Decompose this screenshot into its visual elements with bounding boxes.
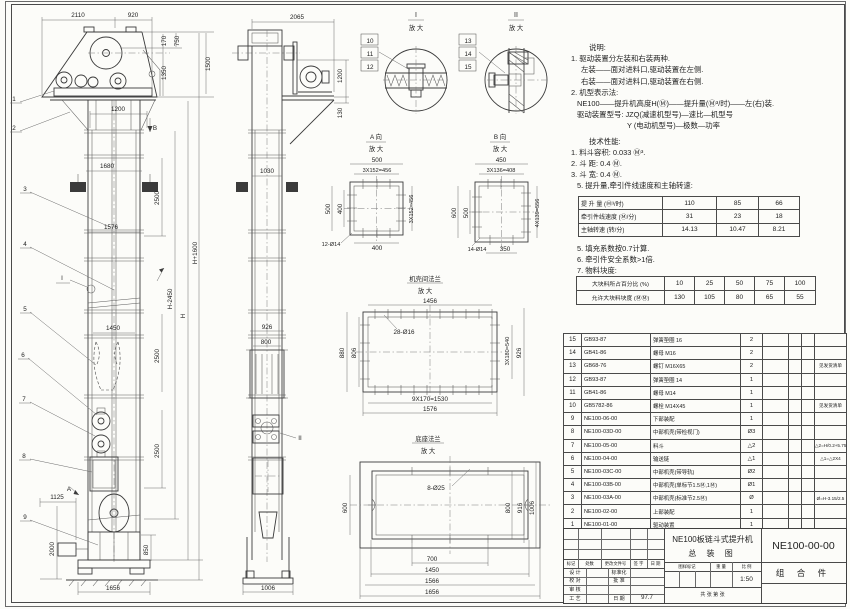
- table-cell: 见发货清单: [815, 400, 846, 412]
- table-cell: [802, 466, 815, 478]
- table-cell: 允许大块料块度 (ⓂⓂ): [577, 291, 665, 304]
- table-cell: [789, 387, 802, 399]
- side-elevation-view: [232, 19, 349, 595]
- table-row: 10GB5782-86螺栓 M14X451见发货清单: [564, 399, 846, 412]
- rev-header: 更改文件号: [601, 559, 630, 568]
- table-cell: 55: [785, 291, 815, 304]
- table-cell: [789, 426, 802, 438]
- table-cell: NE100-04-00: [582, 453, 651, 465]
- table-cell: 23: [717, 210, 759, 222]
- table-cell: 100: [785, 277, 815, 290]
- table-cell: GB5782-86: [582, 400, 651, 412]
- table-cell: [789, 479, 802, 491]
- table-cell: △1=△2X4: [815, 453, 846, 465]
- notes-block-2: 5. 填充系数按0.7计算.6. 牵引件安全系数>1倍.7. 物料块度:: [563, 243, 847, 277]
- dim-label: 1656: [425, 589, 440, 596]
- note-line: 右装——面对进料口,驱动装置在右侧.: [581, 76, 847, 87]
- table-cell: [802, 479, 815, 491]
- note-line: 技术性能:: [589, 136, 847, 147]
- table-cell: 66: [759, 197, 799, 209]
- front-elevation-view: [10, 17, 214, 595]
- table-cell: [789, 360, 802, 372]
- table-cell: GB41-86: [582, 387, 651, 399]
- table-cell: 螺母 M16: [651, 347, 741, 359]
- table-row: 大块料所占百分比 (%)10255075100: [577, 277, 815, 290]
- table-cell: [789, 492, 802, 504]
- note-line: 2. 机型表示法:: [571, 87, 847, 98]
- table-cell: [763, 466, 789, 478]
- dim-label: 2500: [154, 444, 161, 459]
- dim-label: 1656: [106, 585, 121, 592]
- dim-label: 700: [427, 556, 438, 563]
- dim-label: 12: [366, 64, 374, 71]
- table-cell: 3: [564, 492, 582, 504]
- table-cell: 12: [564, 374, 582, 386]
- dim-label: 1350: [161, 66, 168, 81]
- table-cell: 7: [564, 440, 582, 452]
- table-cell: 5: [564, 466, 582, 478]
- dim-label: 1006: [261, 585, 276, 592]
- dim-label: 3X136=408: [487, 168, 516, 174]
- note-line: 左装——面对进料口,驱动装置在左侧.: [581, 64, 847, 75]
- table-row: 3NE100-03A-00中部机壳(标准节2.5Ⓜ)ØØ=H-3.15/2.5: [564, 491, 846, 504]
- drawing-scale: 1:50: [732, 571, 761, 587]
- dim-label: 放 大: [421, 446, 436, 455]
- dim-label: 11: [367, 51, 374, 58]
- table-cell: [789, 440, 802, 452]
- table-cell: 下部装配: [651, 413, 741, 425]
- dim-label: 2065: [290, 14, 305, 21]
- dim-label: 2500: [154, 349, 161, 364]
- table-cell: [763, 387, 789, 399]
- table-cell: △1: [741, 453, 763, 465]
- table-cell: 85: [717, 197, 759, 209]
- table-cell: 中部机壳(带导轨): [651, 466, 741, 478]
- table-cell: 105: [695, 291, 725, 304]
- dim-label: 916: [517, 502, 524, 513]
- dim-label: B: [153, 125, 157, 132]
- dim-label: H-2450: [167, 288, 174, 309]
- dim-label: 8: [22, 453, 26, 460]
- dim-label: 底座法兰: [415, 434, 440, 443]
- table-cell: 10: [564, 400, 582, 412]
- table-row: 允许大块料块度 (ⓂⓂ)130105806555: [577, 290, 815, 304]
- table-cell: GB68-76: [582, 360, 651, 372]
- table-row: 7NE100-05-00料斗△2△2=H/0.2+5.75: [564, 439, 846, 452]
- staff-label: 设 计: [564, 568, 586, 577]
- note-line: 1. 驱动装置分左装和右装两种.: [571, 53, 847, 64]
- dim-label: H: [180, 313, 187, 318]
- table-cell: 大块料所占百分比 (%): [577, 277, 665, 290]
- table-row: 提 升 量 (Ⓜ³/时)1108566: [579, 197, 799, 209]
- table-cell: 螺钉 M16X65: [651, 360, 741, 372]
- dim-label: 3X180=540: [505, 337, 511, 366]
- dim-label: I: [415, 12, 417, 19]
- table-cell: 1: [741, 400, 763, 412]
- staff-label: 批 准: [608, 577, 630, 586]
- table-cell: 1: [741, 505, 763, 517]
- table-row: 15GB93-87弹簧垫圈 162: [564, 334, 846, 346]
- table-cell: [815, 347, 846, 359]
- dim-label: 放 大: [509, 23, 524, 32]
- dim-label: 1500: [205, 57, 212, 72]
- dim-label: 放 大: [493, 144, 508, 153]
- table-cell: 2: [741, 347, 763, 359]
- table-cell: NE100-05-00: [582, 440, 651, 452]
- note-line: 3. 斗 宽: 0.4 Ⓜ.: [571, 169, 847, 180]
- table-cell: NE100-03A-00: [582, 492, 651, 504]
- note-line: 6. 牵引件安全系数>1倍.: [577, 254, 847, 265]
- table-cell: 料斗: [651, 440, 741, 452]
- dim-label: 放 大: [409, 23, 424, 32]
- engineering-drawing-sheet: 2110920170750135015001200B168025001576H+…: [0, 0, 850, 609]
- table-cell: 牵引件线速度 (Ⓜ/分): [579, 210, 663, 222]
- table-row: 5NE100-03C-00中部机壳(带导轨)Ø2: [564, 465, 846, 478]
- table-cell: 14: [564, 347, 582, 359]
- table-cell: [763, 374, 789, 386]
- dim-label: 500: [372, 157, 383, 164]
- note-line: Y (电动机型号)—极数—功率: [627, 120, 847, 131]
- dim-label: 1576: [104, 224, 119, 231]
- note-line: 说明:: [589, 42, 847, 53]
- table-row: 主轴转速 (转/分)14.1310.478.21: [579, 223, 799, 236]
- table-cell: [815, 505, 846, 517]
- table-cell: [815, 479, 846, 491]
- table-cell: GB93-87: [582, 374, 651, 386]
- table-cell: [789, 466, 802, 478]
- table-cell: [763, 347, 789, 359]
- dim-label: 15: [464, 64, 472, 71]
- dim-label: 1030: [260, 168, 275, 175]
- capacity-speed-table: 提 升 量 (Ⓜ³/时)1108566牵引件线速度 (Ⓜ/分)312318主轴转…: [578, 196, 800, 237]
- dim-label: II: [514, 12, 518, 19]
- stamp-label: 图样标记: [664, 562, 710, 571]
- dim-label: 1: [12, 96, 16, 103]
- dim-label: 880: [339, 347, 346, 358]
- table-cell: NE100-02-00: [582, 505, 651, 517]
- note-line: 5. 提升量,牵引件线速度和主轴转速:: [577, 180, 847, 191]
- staff-label: 工 艺: [564, 594, 586, 603]
- table-cell: △2: [741, 440, 763, 452]
- table-cell: 1: [741, 374, 763, 386]
- table-cell: 110: [663, 197, 717, 209]
- rev-header: 日 期: [647, 559, 664, 568]
- table-cell: 1: [741, 413, 763, 425]
- staff-label: 日 期: [608, 594, 630, 603]
- table-cell: [789, 453, 802, 465]
- table-cell: [802, 426, 815, 438]
- table-cell: Ø=H-3.15/2.5: [815, 492, 846, 504]
- table-cell: 2: [741, 334, 763, 346]
- table-cell: Ø3: [741, 426, 763, 438]
- dim-label: 806: [351, 347, 358, 358]
- dim-label: 920: [128, 12, 139, 19]
- table-cell: [815, 374, 846, 386]
- table-cell: 中部机壳(带检视门): [651, 426, 741, 438]
- table-cell: 14.13: [663, 224, 717, 236]
- dim-label: II: [298, 435, 302, 442]
- table-row: 9NE100-06-00下部装配1: [564, 412, 846, 425]
- table-cell: [815, 413, 846, 425]
- table-cell: [815, 426, 846, 438]
- table-cell: 中部机壳(标准节2.5Ⓜ): [651, 492, 741, 504]
- detail-view-I: [361, 20, 449, 114]
- dim-label: 1566: [425, 578, 440, 585]
- table-row: 13GB68-76螺钉 M16X652见发货清单: [564, 359, 846, 372]
- table-cell: 2: [741, 360, 763, 372]
- dim-label: 850: [143, 544, 150, 555]
- table-cell: 螺栓 M14X45: [651, 400, 741, 412]
- table-cell: 6: [564, 453, 582, 465]
- table-cell: 31: [663, 210, 717, 222]
- dim-label: 926: [516, 347, 523, 358]
- dim-label: 400: [372, 245, 383, 252]
- table-cell: [802, 360, 815, 372]
- dim-label: 4: [23, 241, 27, 248]
- dim-label: 170: [161, 35, 168, 46]
- table-row: 14GB41-86螺母 M162: [564, 346, 846, 359]
- dim-label: 13: [464, 38, 472, 45]
- dim-label: 7: [22, 396, 26, 403]
- title-block: 标记 处数 更改文件号 签 字 日 期 设 计 校 对 审 核 工 艺 标准化 …: [563, 528, 847, 604]
- dim-label: 2: [12, 125, 16, 132]
- table-cell: [763, 453, 789, 465]
- dim-label: 1450: [106, 325, 121, 332]
- table-cell: 弹簧垫圈 14: [651, 374, 741, 386]
- table-cell: NE100-03C-00: [582, 466, 651, 478]
- dim-label: 750: [174, 35, 181, 46]
- dim-label: 2500: [154, 191, 161, 206]
- table-cell: [802, 334, 815, 346]
- table-cell: [815, 334, 846, 346]
- dim-label: 1125: [50, 494, 64, 501]
- table-cell: 主轴转速 (转/分): [579, 224, 663, 236]
- note-line: 1. 料斗容积: 0.033 Ⓜ³.: [571, 147, 847, 158]
- note-line: 5. 填充系数按0.7计算.: [577, 243, 847, 254]
- table-cell: [763, 426, 789, 438]
- dim-label: 4X139=556: [535, 199, 541, 228]
- rev-header: 签 字: [630, 559, 647, 568]
- rev-header: 处数: [578, 559, 601, 568]
- part-category: 组 合 件: [761, 562, 846, 583]
- table-cell: [789, 374, 802, 386]
- dim-label: 1576: [423, 406, 438, 413]
- table-row: 4NE100-03B-00中部机壳(单标节1.5Ⓜ,1Ⓜ)Ø1: [564, 478, 846, 491]
- dim-label: 130: [337, 107, 344, 118]
- note-line: NE100——提升机高度H(Ⓜ)——提升量(Ⓜ³/时)——左(右)装.: [577, 98, 847, 109]
- dim-label: H+1600: [192, 241, 199, 264]
- dim-label: 14: [464, 51, 472, 58]
- staff-label: 标准化: [608, 568, 630, 577]
- table-cell: 25: [695, 277, 725, 290]
- dim-label: 12-Ø14: [322, 242, 341, 248]
- dim-label: 6: [21, 352, 25, 359]
- note-line: 7. 物料块度:: [577, 265, 847, 276]
- dim-label: 500: [463, 207, 470, 218]
- table-cell: [802, 440, 815, 452]
- table-cell: NE100-06-00: [582, 413, 651, 425]
- dim-label: 600: [342, 502, 349, 513]
- dim-label: 400: [337, 203, 344, 214]
- table-cell: [763, 479, 789, 491]
- table-cell: 11: [564, 387, 582, 399]
- table-cell: GB41-86: [582, 347, 651, 359]
- table-cell: 9: [564, 413, 582, 425]
- table-cell: [763, 492, 789, 504]
- dim-label: A 向: [370, 132, 382, 141]
- table-cell: 输送链: [651, 453, 741, 465]
- table-cell: NE100-03B-00: [582, 479, 651, 491]
- dim-label: 5: [23, 306, 27, 313]
- dim-label: 450: [496, 157, 507, 164]
- table-cell: 65: [755, 291, 785, 304]
- dim-label: 10: [366, 38, 374, 45]
- table-row: 牵引件线速度 (Ⓜ/分)312318: [579, 209, 799, 222]
- table-cell: [802, 347, 815, 359]
- dim-label: 1200: [337, 69, 344, 84]
- table-cell: 2: [564, 505, 582, 517]
- table-row: 8NE100-03D-00中部机壳(带检视门)Ø3: [564, 425, 846, 438]
- table-cell: [802, 413, 815, 425]
- table-cell: 8: [564, 426, 582, 438]
- table-cell: [763, 440, 789, 452]
- dim-label: 926: [262, 324, 273, 331]
- table-cell: 1: [741, 387, 763, 399]
- sheet-pages: 共 张 第 张: [664, 587, 761, 603]
- table-cell: [763, 413, 789, 425]
- table-cell: 8.21: [759, 224, 799, 236]
- table-cell: 弹簧垫圈 16: [651, 334, 741, 346]
- bill-of-materials-table: 15GB93-87弹簧垫圈 16214GB41-86螺母 M16213GB68-…: [563, 333, 847, 545]
- table-row: 6NE100-04-00输送链△1△1=△2X4: [564, 452, 846, 465]
- table-cell: 见发货清单: [815, 360, 846, 372]
- rev-header: 标记: [564, 559, 578, 568]
- table-cell: [789, 400, 802, 412]
- note-line: 驱动装置型号: JZQ(减速机型号)—速比—机型号: [577, 109, 847, 120]
- table-cell: 上部装配: [651, 505, 741, 517]
- table-cell: [802, 492, 815, 504]
- dim-label: 8-Ø25: [427, 485, 445, 492]
- drawing-number: NE100-00-00: [761, 529, 846, 562]
- table-cell: [802, 453, 815, 465]
- drawing-date: 97.7: [630, 594, 664, 603]
- table-cell: 13: [564, 360, 582, 372]
- table-row: 11GB41-86螺母 M141: [564, 386, 846, 399]
- dim-label: 9: [23, 514, 27, 521]
- dim-label: 500: [325, 203, 332, 214]
- table-cell: △2=H/0.2+5.75: [815, 440, 846, 452]
- table-cell: [789, 505, 802, 517]
- detail-view-II: [459, 20, 547, 114]
- staff-label: 校 对: [564, 577, 586, 586]
- notes-block: 说明:1. 驱动装置分左装和右装两种.左装——面对进料口,驱动装置在左侧.右装—…: [563, 42, 847, 192]
- dim-label: 机壳间法兰: [409, 274, 440, 283]
- dim-label: 14-Ø14: [468, 247, 487, 253]
- dim-label: B 向: [494, 132, 506, 141]
- table-cell: 15: [564, 334, 582, 346]
- table-cell: [789, 413, 802, 425]
- dim-label: I: [61, 275, 63, 282]
- table-cell: 提 升 量 (Ⓜ³/时): [579, 197, 663, 209]
- dim-label: 放 大: [418, 286, 433, 295]
- stamp-label: 比 例: [732, 562, 761, 571]
- dim-label: 放 大: [369, 144, 384, 153]
- table-cell: 75: [755, 277, 785, 290]
- stamp-label: 重 量: [710, 562, 732, 571]
- dim-label: 1450: [425, 567, 440, 574]
- table-cell: 18: [759, 210, 799, 222]
- staff-label: 审 核: [564, 585, 586, 594]
- table-cell: [763, 400, 789, 412]
- table-cell: [763, 360, 789, 372]
- table-cell: 80: [725, 291, 755, 304]
- dim-label: 350: [500, 246, 511, 253]
- base-flange-detail: [350, 443, 550, 599]
- table-cell: [763, 334, 789, 346]
- dim-label: 3X152=456: [363, 168, 392, 174]
- table-cell: [789, 334, 802, 346]
- table-cell: 螺母 M14: [651, 387, 741, 399]
- table-cell: [802, 374, 815, 386]
- table-cell: NE100-03D-00: [582, 426, 651, 438]
- drawing-title: 总 装 图: [664, 546, 761, 560]
- lump-size-table: 大块料所占百分比 (%)10255075100允许大块料块度 (ⓂⓂ)13010…: [576, 276, 816, 305]
- table-cell: 10: [665, 277, 695, 290]
- dim-label: 1006: [529, 501, 536, 516]
- table-cell: [802, 387, 815, 399]
- table-cell: [802, 400, 815, 412]
- dim-label: 3: [23, 186, 27, 193]
- table-cell: 10.47: [717, 224, 759, 236]
- dim-label: 2000: [49, 542, 56, 557]
- table-row: 2NE100-02-00上部装配1: [564, 504, 846, 517]
- dim-label: 800: [505, 502, 512, 513]
- table-cell: Ø2: [741, 466, 763, 478]
- table-row: 12GB93-87弹簧垫圈 141: [564, 373, 846, 386]
- table-cell: 130: [665, 291, 695, 304]
- dim-label: 1456: [423, 298, 438, 305]
- dim-label: 800: [261, 339, 272, 346]
- table-cell: GB93-87: [582, 334, 651, 346]
- table-cell: 50: [725, 277, 755, 290]
- dim-label: 2110: [71, 12, 85, 19]
- table-cell: 中部机壳(单标节1.5Ⓜ,1Ⓜ): [651, 479, 741, 491]
- dim-label: 1200: [111, 106, 126, 113]
- dim-label: 28-Ø16: [393, 329, 415, 336]
- table-cell: [815, 466, 846, 478]
- table-cell: Ø: [741, 492, 763, 504]
- dim-label: 600: [451, 207, 458, 218]
- table-cell: [763, 505, 789, 517]
- table-cell: [802, 505, 815, 517]
- dim-label: 3X152=456: [409, 195, 415, 224]
- table-cell: [789, 347, 802, 359]
- dim-label: 1680: [100, 163, 115, 170]
- table-cell: 4: [564, 479, 582, 491]
- table-cell: [815, 387, 846, 399]
- note-line: 2. 斗 距: 0.4 Ⓜ.: [571, 158, 847, 169]
- dim-label: A: [67, 486, 72, 493]
- product-name: NE100板链斗式提升机: [664, 532, 761, 546]
- dim-label: 9X170=1530: [412, 396, 448, 403]
- table-cell: Ø1: [741, 479, 763, 491]
